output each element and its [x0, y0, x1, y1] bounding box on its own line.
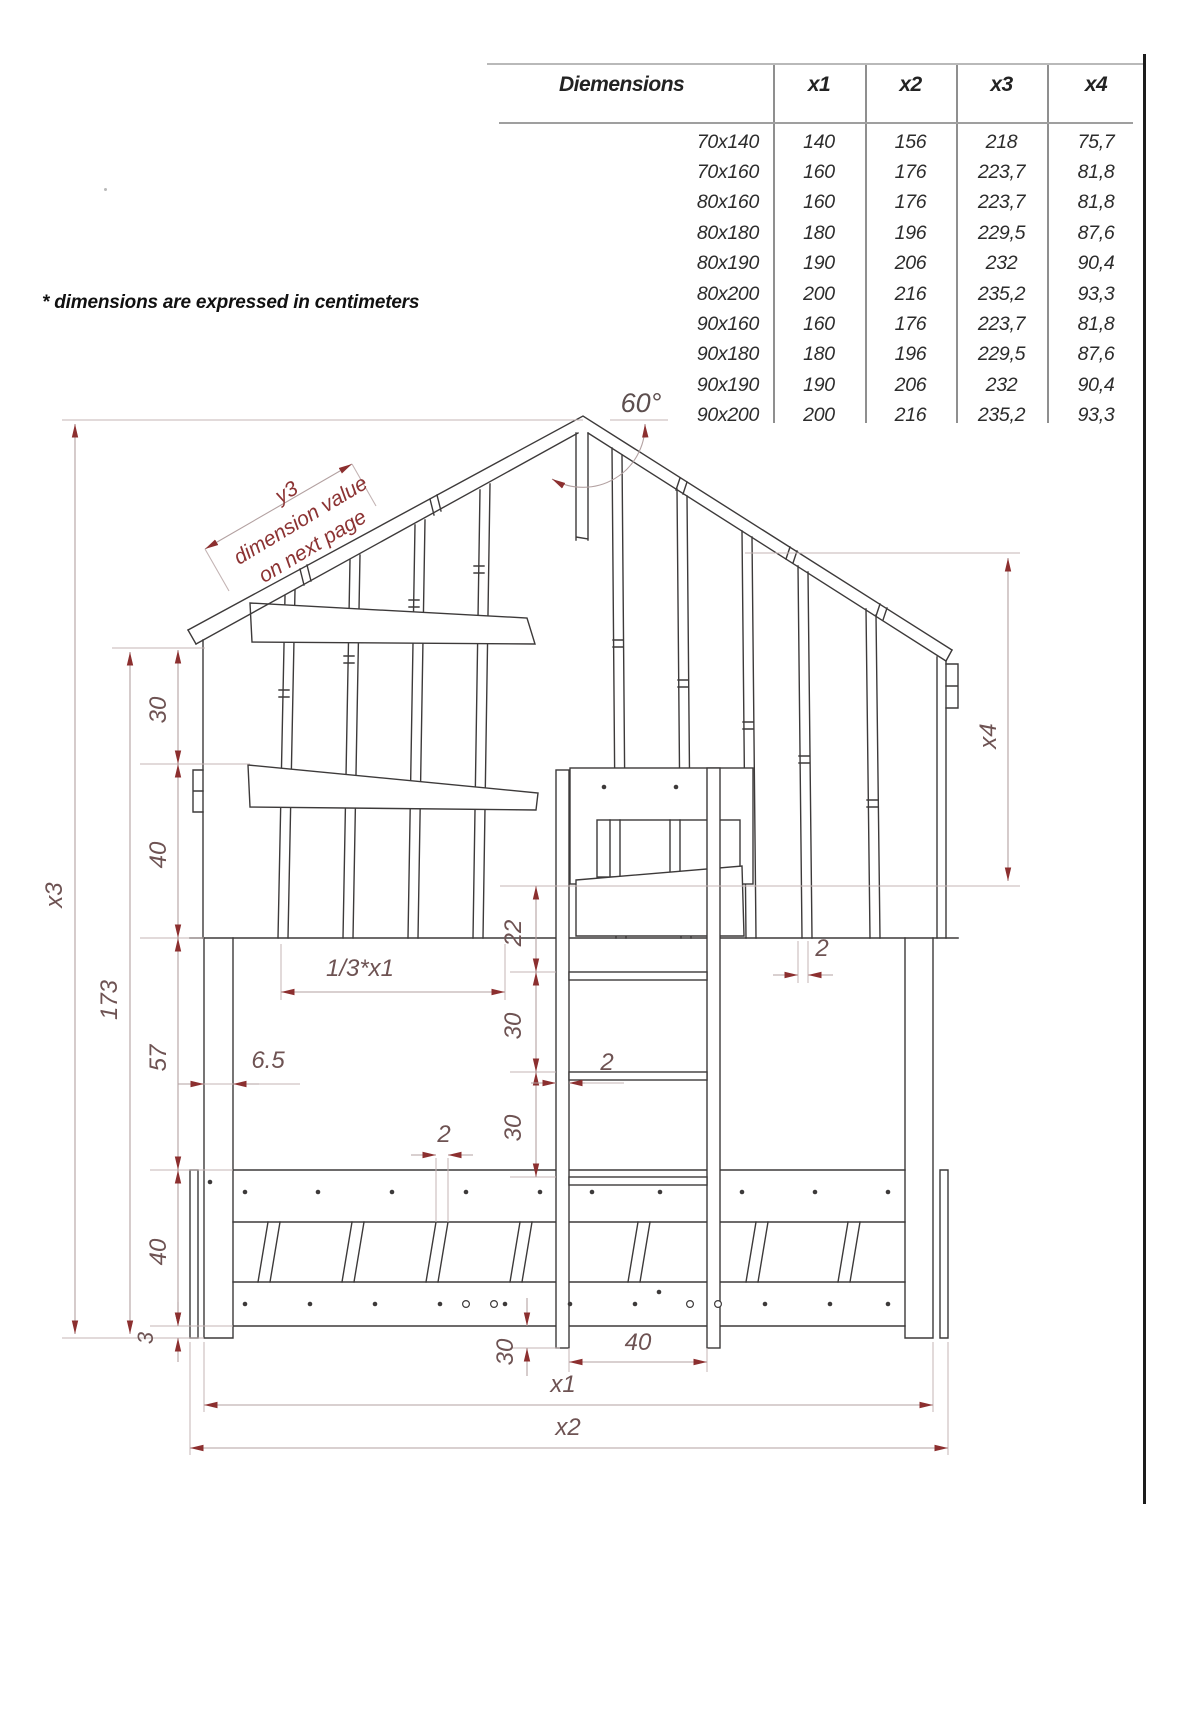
dim-x2: x2	[554, 1414, 580, 1441]
dim-2-plank: 2	[814, 935, 828, 962]
dim-57: 57	[145, 1043, 172, 1071]
dim-x4: x4	[975, 723, 1002, 749]
dim-6-5: 6.5	[251, 1047, 285, 1074]
dim-30-bottom: 30	[492, 1338, 519, 1365]
dim-173: 173	[96, 979, 123, 1020]
dim-22: 22	[500, 920, 527, 948]
bolt-circles	[463, 1301, 722, 1308]
dim-40: 40	[145, 841, 172, 868]
dim-x1: x1	[549, 1371, 575, 1398]
dim-30a: 30	[500, 1012, 527, 1039]
dimension-lines	[75, 420, 1008, 1448]
dim-40-ladder: 40	[625, 1329, 652, 1356]
dimension-labels: x3 173 30 40 57 40 3 y3 dimension value …	[41, 388, 1002, 1441]
dim-30: 30	[145, 696, 172, 723]
dim-third-x1: 1/3*x1	[326, 955, 394, 982]
blueprint-page: Diemensions x1 x2 x3 x4 70x1401401562187…	[0, 0, 1200, 1722]
dim-30b: 30	[500, 1114, 527, 1141]
dim-angle-60: 60°	[621, 388, 662, 418]
dim-3: 3	[133, 1331, 158, 1344]
roof-dim-y3: y3	[270, 477, 303, 509]
shutter-board-upper	[250, 603, 535, 644]
dim-x3: x3	[41, 882, 68, 909]
dim-2-ladder: 2	[599, 1049, 613, 1076]
screw-dots	[208, 785, 891, 1307]
bed-technical-drawing: x3 173 30 40 57 40 3 y3 dimension value …	[0, 0, 1200, 1722]
shutter-board-lower	[248, 765, 538, 810]
dim-2-slat: 2	[436, 1121, 450, 1148]
dim-40b: 40	[145, 1238, 172, 1265]
